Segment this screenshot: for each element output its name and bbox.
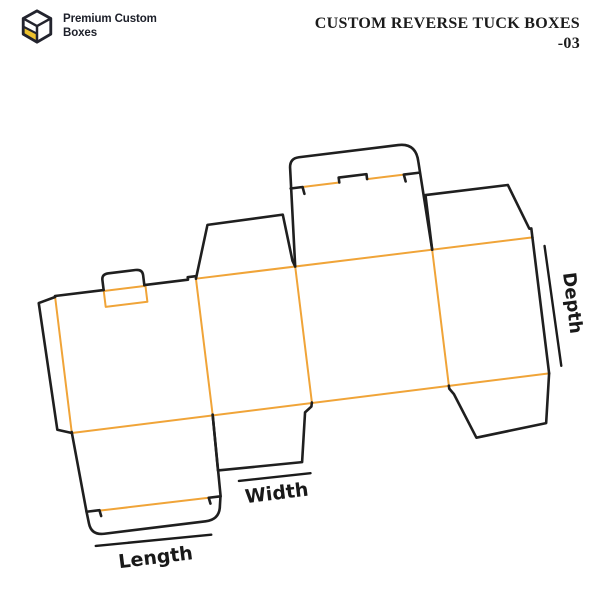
top-tuck-slits (290, 168, 420, 196)
glue-flap (38, 297, 72, 435)
depth-label: Depth (558, 271, 586, 335)
bottom-tuck-flap (72, 415, 226, 537)
top-tuck-flap (282, 142, 432, 266)
panel1-top-edge (55, 276, 196, 296)
dieline-svg: Length Width Depth (0, 0, 600, 600)
length-label: Length (117, 542, 194, 573)
tab-crease-rect (104, 286, 148, 307)
page: { "header": { "logo": { "line1": "Premiu… (0, 0, 600, 600)
cut-lines (25, 130, 562, 538)
dimension-lines (66, 246, 576, 549)
dimension-labels: Length Width Depth (90, 271, 600, 573)
bottom-tuck-fold (99, 497, 208, 511)
glue-fold-line (55, 297, 72, 433)
top-fold-line (196, 237, 532, 278)
width-label: Width (244, 479, 310, 509)
dieline-canvas: Length Width Depth (0, 0, 600, 600)
panel1-panel2-fold (196, 279, 213, 415)
bottom-fold-line (72, 373, 550, 433)
panel3-panel4-fold (432, 250, 449, 386)
panel2-panel3-fold (295, 267, 312, 403)
